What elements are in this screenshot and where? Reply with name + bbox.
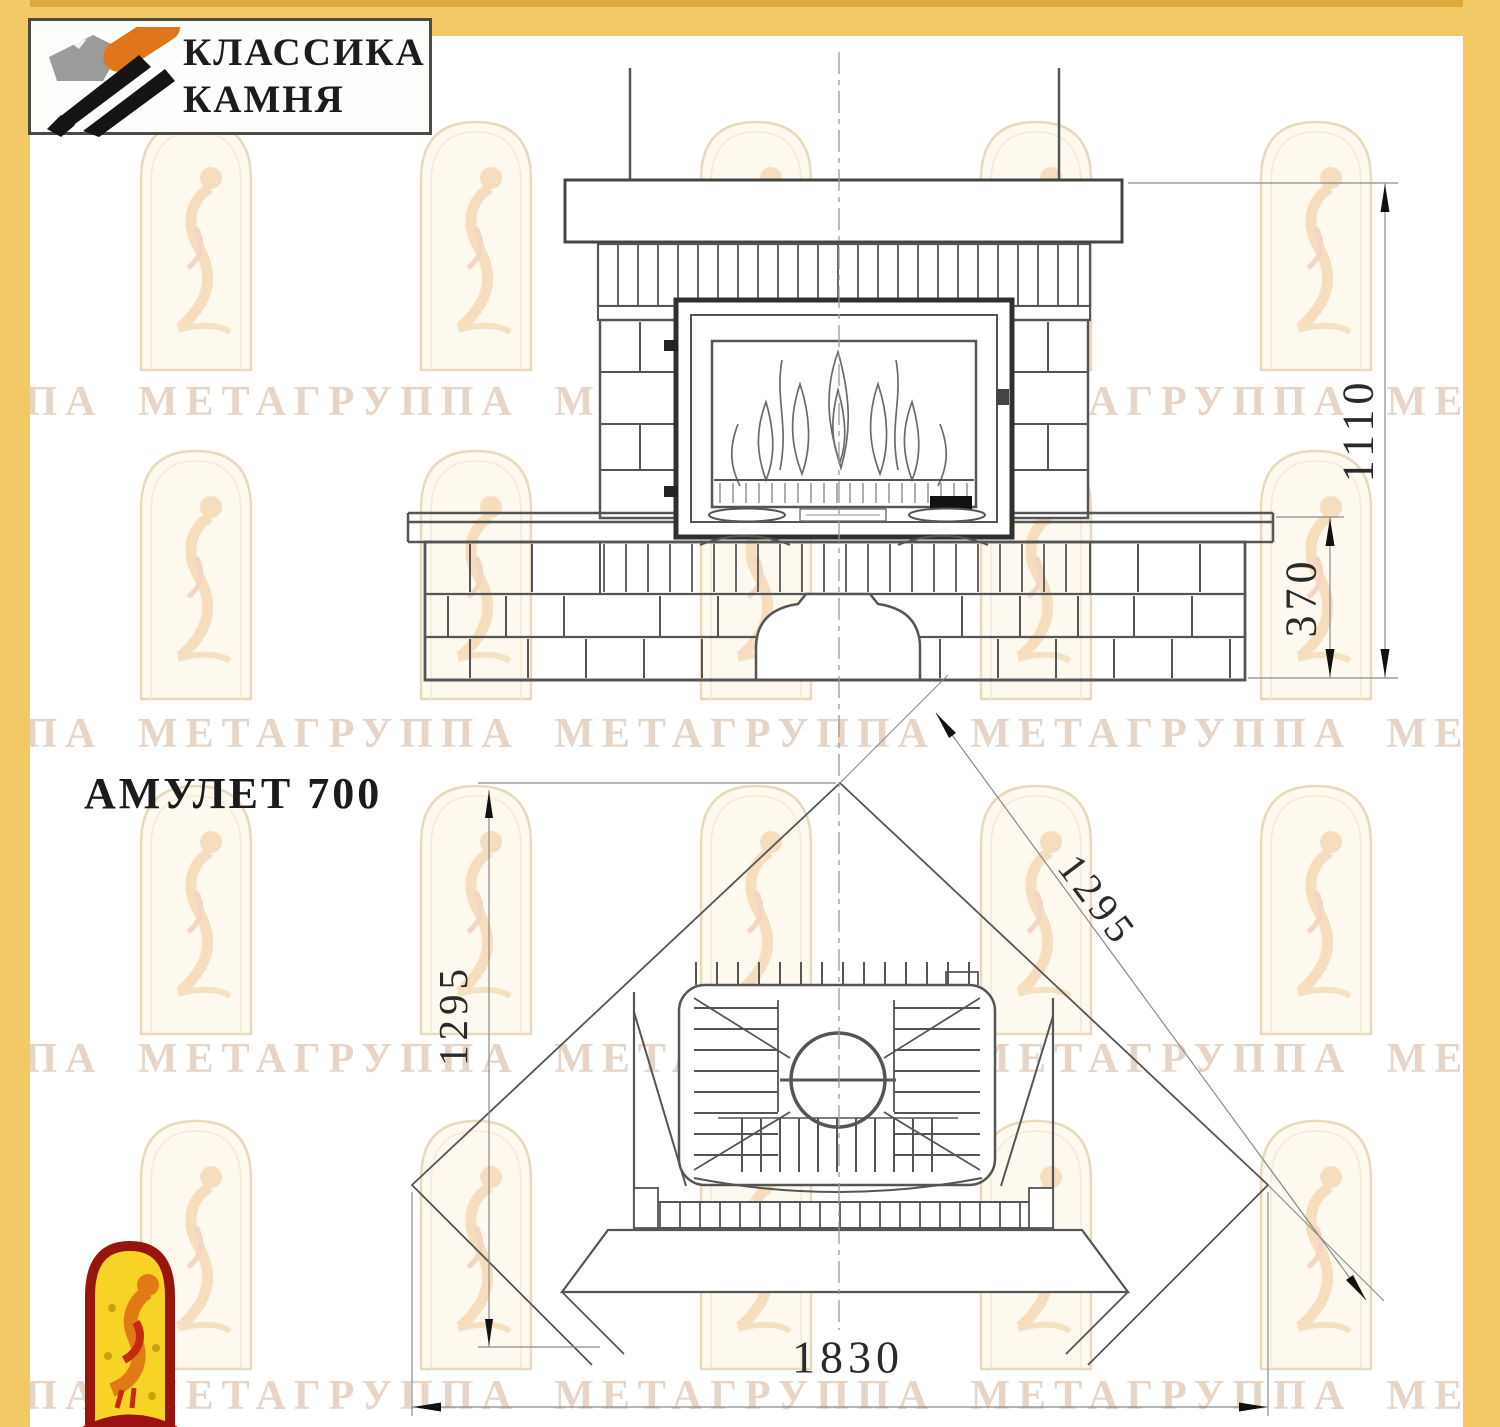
- mantel-shelf: [565, 180, 1122, 242]
- model-title: АМУЛЕТ 700: [84, 768, 382, 819]
- dim-label-bench-height: 370: [1276, 557, 1327, 638]
- dim-label-plan-depth: 1295: [429, 964, 477, 1066]
- page-border-right: [1463, 0, 1500, 1427]
- firebox-door: [664, 300, 1012, 545]
- dim-label-front-height: 1110: [1333, 378, 1384, 483]
- dim-label-plan-width: 1830: [792, 1331, 904, 1384]
- catalog-page: { "logo": { "line1": "КЛАССИКА", "line2"…: [0, 0, 1500, 1427]
- plan-firebox: [679, 962, 995, 1192]
- plan-view: [412, 675, 1384, 1416]
- fireplace-technical-drawing: [0, 0, 1500, 1427]
- door-handle: [930, 496, 972, 509]
- door-hinge-top: [664, 340, 678, 351]
- page-border-left: [0, 0, 30, 1427]
- plan-front-face: [562, 1230, 1128, 1292]
- logo-line1: КЛАССИКА: [183, 29, 426, 76]
- logo-text: КЛАССИКА КАМНЯ: [183, 29, 426, 123]
- mascot-bird-icon: [82, 1238, 178, 1427]
- front-elevation-view: [408, 68, 1398, 680]
- masonry-base: [425, 542, 1245, 680]
- door-latch: [996, 389, 1009, 405]
- right-brick-column: [1008, 320, 1088, 518]
- stone-logo-icon: [41, 27, 191, 139]
- logo-line2: КАМНЯ: [183, 76, 426, 123]
- logo-box: КЛАССИКА КАМНЯ: [28, 18, 432, 135]
- door-hinge-bottom: [664, 486, 678, 497]
